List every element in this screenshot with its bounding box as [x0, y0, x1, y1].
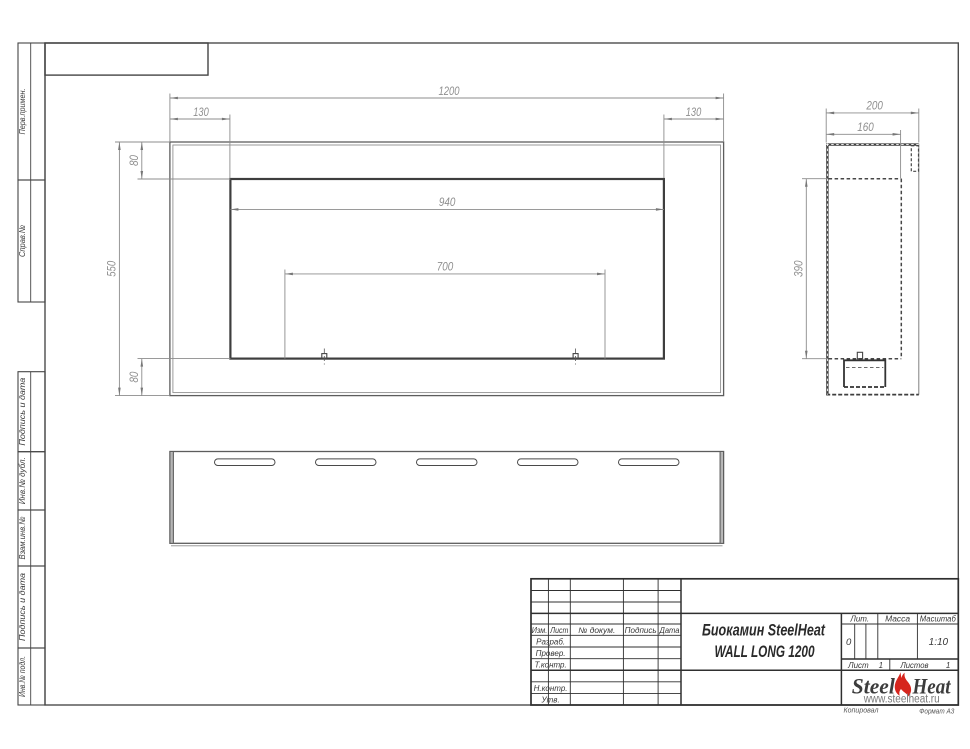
svg-text:200: 200	[865, 100, 883, 112]
svg-text:Н.контр.: Н.контр.	[534, 684, 568, 693]
svg-text:Дата: Дата	[659, 626, 680, 635]
svg-text:Лист: Лист	[549, 626, 568, 635]
svg-text:Инв.№ дубл.: Инв.№ дубл.	[17, 457, 27, 504]
svg-text:700: 700	[437, 261, 454, 273]
svg-text:Масштаб: Масштаб	[920, 615, 956, 624]
svg-text:Взам.инв.№: Взам.инв.№	[17, 517, 27, 560]
svg-text:1: 1	[946, 661, 950, 670]
svg-text:Подпись и дата: Подпись и дата	[17, 573, 27, 641]
svg-text:390: 390	[793, 260, 805, 277]
svg-text:0: 0	[846, 637, 852, 648]
svg-text:80: 80	[129, 371, 141, 383]
svg-text:www.steelheat.ru: www.steelheat.ru	[863, 694, 940, 706]
svg-text:Справ.№: Справ.№	[17, 225, 27, 257]
svg-text:Лит.: Лит.	[849, 615, 869, 624]
svg-text:160: 160	[857, 122, 874, 134]
svg-text:Утв.: Утв.	[541, 696, 560, 705]
svg-text:940: 940	[439, 197, 456, 209]
svg-text:1:10: 1:10	[929, 637, 949, 648]
svg-text:550: 550	[107, 260, 119, 277]
svg-text:130: 130	[193, 107, 209, 119]
svg-text:130: 130	[686, 107, 702, 119]
svg-text:Подпись: Подпись	[625, 626, 657, 635]
svg-text:Изм.: Изм.	[532, 626, 548, 635]
svg-text:Биокамин SteelHeat: Биокамин SteelHeat	[702, 622, 826, 640]
svg-text:Подпись и дата: Подпись и дата	[17, 377, 27, 445]
svg-text:Лист: Лист	[847, 661, 869, 670]
svg-text:WALL LONG 1200: WALL LONG 1200	[715, 643, 816, 661]
svg-text:Формат А3: Формат А3	[919, 707, 955, 716]
svg-text:№ докум.: № докум.	[578, 626, 615, 635]
svg-text:Копировал: Копировал	[844, 706, 880, 715]
svg-text:Перв.примен.: Перв.примен.	[17, 89, 27, 135]
svg-text:Масса: Масса	[885, 615, 911, 624]
svg-text:1: 1	[879, 661, 883, 670]
svg-text:Разраб.: Разраб.	[536, 637, 565, 646]
svg-text:Т.контр.: Т.контр.	[534, 661, 566, 670]
svg-text:80: 80	[129, 154, 141, 166]
svg-text:Листов: Листов	[900, 661, 929, 670]
svg-text:Провер.: Провер.	[536, 649, 566, 658]
svg-text:1200: 1200	[439, 86, 460, 98]
svg-text:Инв.№ подл.: Инв.№ подл.	[17, 656, 27, 697]
